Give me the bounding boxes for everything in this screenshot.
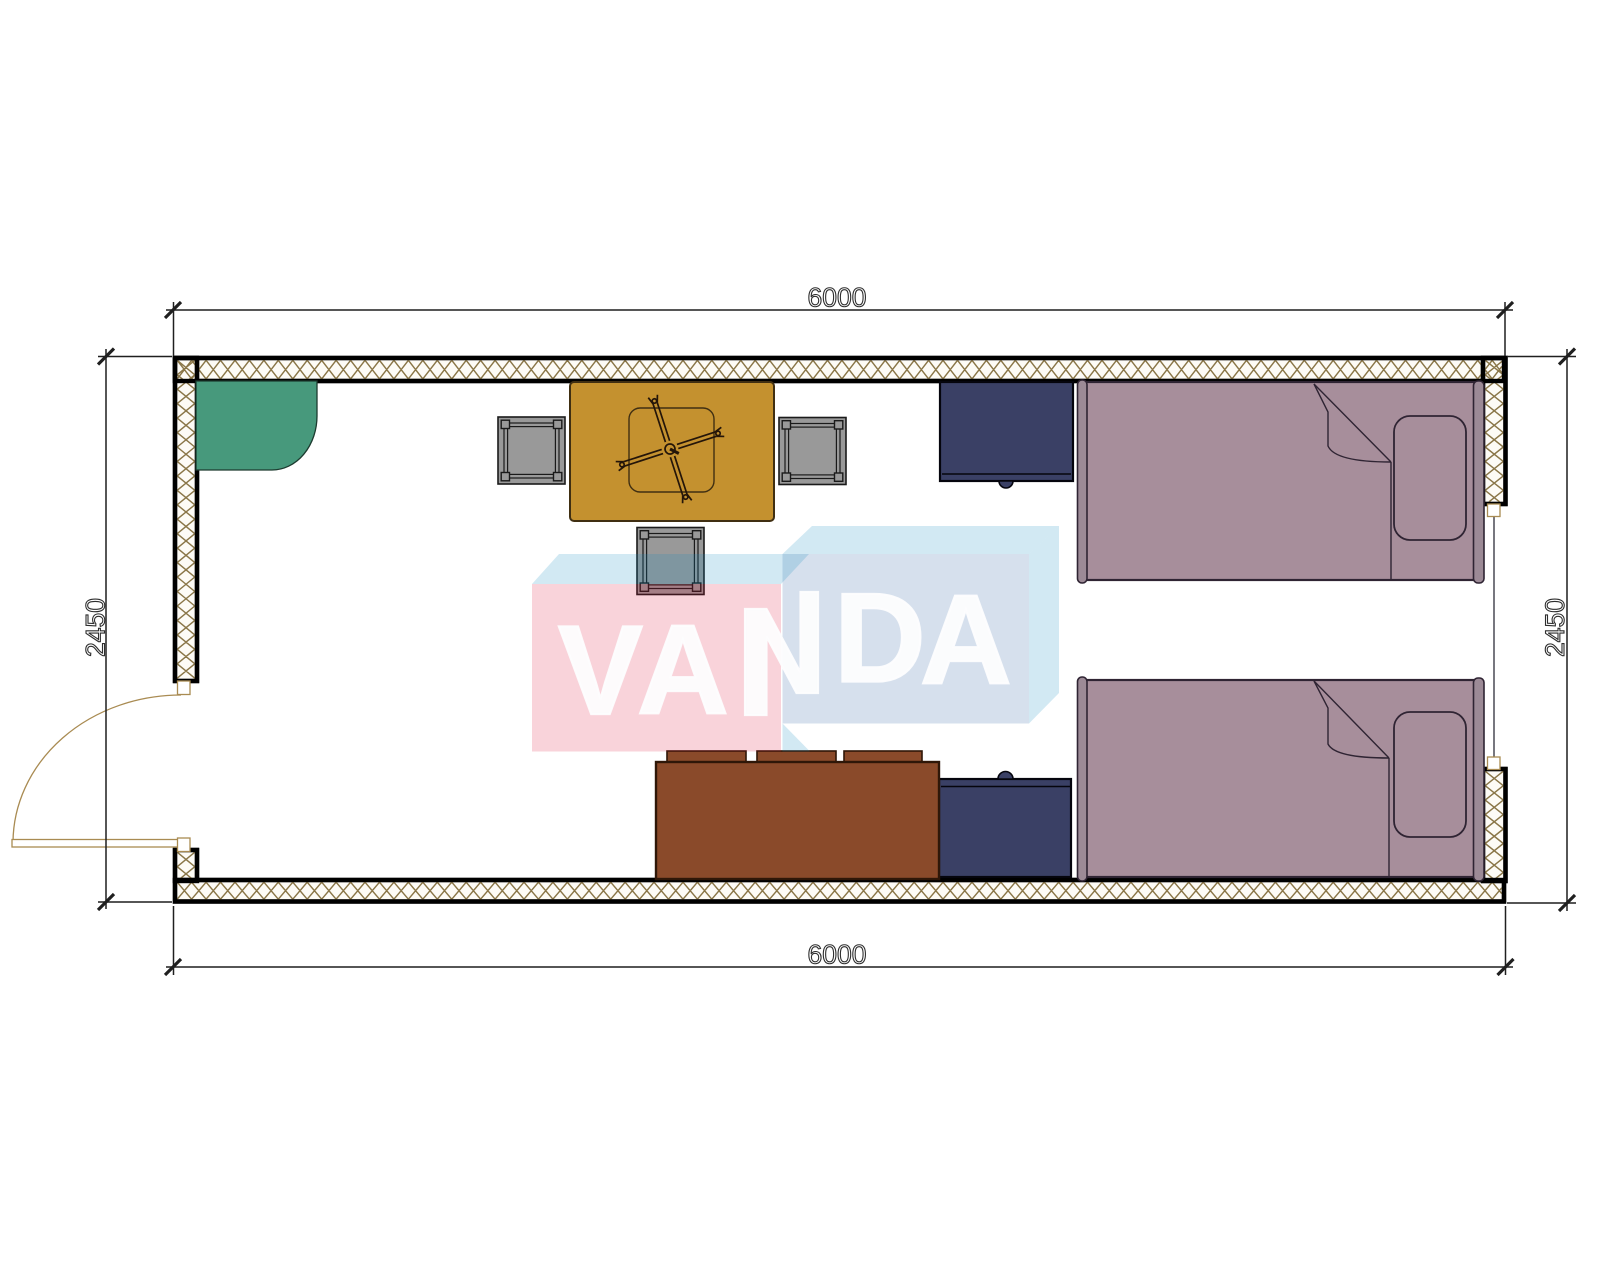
svg-text:6000: 6000 [808, 283, 867, 313]
svg-text:A: A [920, 569, 1012, 711]
svg-text:2450: 2450 [81, 598, 111, 657]
svg-text:2450: 2450 [1540, 598, 1570, 657]
svg-text:A: A [637, 599, 729, 741]
svg-text:D: D [834, 567, 926, 709]
svg-text:V: V [558, 599, 643, 741]
svg-text:6000: 6000 [808, 940, 867, 970]
